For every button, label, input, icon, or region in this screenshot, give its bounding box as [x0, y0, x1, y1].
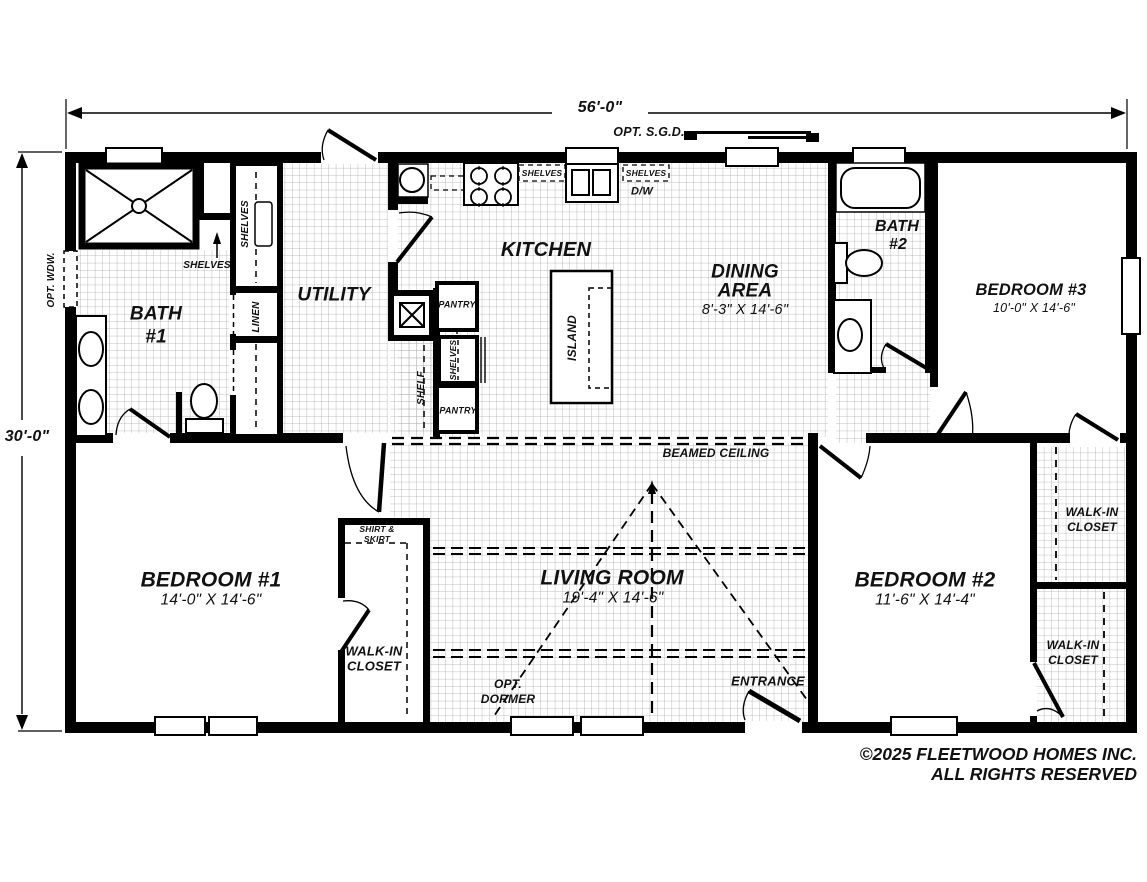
copyright-line2: ALL RIGHTS RESERVED: [860, 765, 1137, 785]
label-shirt-skirt-line2: SKIRT: [364, 535, 390, 544]
vanity-bath1: [76, 316, 106, 436]
label-closet-bottom-right-line1: WALK-IN: [1047, 639, 1100, 651]
label-opt-wdw: OPT. WDW.: [47, 252, 57, 307]
room-label-bath1-line2: #1: [145, 328, 167, 347]
floor-plan: 56'-0" 30'-0" OPT. S.G.D. OPT. WDW. BATH…: [0, 0, 1147, 882]
room-label-dining-line1: DINING: [711, 263, 779, 282]
label-shelves-pantry: SHELVES: [449, 340, 458, 381]
label-shelf: SHELF: [417, 371, 427, 405]
room-size-dining: 8'-3" X 14'-6": [702, 303, 788, 318]
room-label-bedroom2: BEDROOM #2: [855, 570, 996, 591]
room-label-bath2-line2: #2: [889, 237, 907, 253]
room-label-bath2-line1: BATH: [875, 219, 919, 235]
label-entrance: ENTRANCE: [731, 675, 805, 688]
label-closet-bedroom1-line1: WALK-IN: [346, 645, 403, 658]
label-closet-bedroom1-line2: CLOSET: [347, 660, 401, 673]
label-shelves-kitchen-right: SHELVES: [626, 169, 667, 178]
copyright-line1: ©2025 FLEETWOOD HOMES INC.: [860, 745, 1137, 765]
label-beamed-ceiling: BEAMED CEILING: [663, 447, 770, 459]
room-label-bedroom3: BEDROOM #3: [975, 282, 1086, 299]
closet-bedroom1-walls: [338, 518, 430, 722]
label-shelves-closet: SHELVES: [241, 200, 251, 248]
label-island: ISLAND: [566, 315, 578, 361]
label-opt-dormer-line1: OPT.: [494, 678, 522, 690]
label-shelves-kitchen-left: SHELVES: [522, 169, 563, 178]
stove-icon: [464, 163, 518, 207]
room-label-living: LIVING ROOM: [540, 568, 683, 589]
bathtub: [836, 163, 925, 212]
label-closet-top-right-line2: CLOSET: [1067, 521, 1117, 533]
kitchen-island: [551, 271, 612, 403]
optional-window: [64, 251, 77, 307]
room-label-utility: UTILITY: [297, 286, 370, 305]
room-size-living: 19'-4" X 14'-6": [563, 590, 664, 606]
label-opt-sgd: OPT. S.G.D.: [613, 126, 684, 139]
label-pantry-bottom: PANTRY: [439, 407, 476, 416]
label-linen: LINEN: [252, 302, 262, 333]
sliding-glass-door-symbol: [684, 131, 819, 142]
label-shelves-bath1: SHELVES: [183, 261, 231, 271]
label-opt-dormer-line2: DORMER: [481, 693, 536, 705]
utility-sink: [398, 164, 428, 197]
room-label-dining-line2: AREA: [718, 282, 773, 301]
room-label-kitchen: KITCHEN: [501, 240, 591, 260]
label-closet-top-right-line1: WALK-IN: [1066, 506, 1119, 518]
room-size-bedroom2: 11'-6" X 14'-4": [875, 592, 975, 608]
copyright-notice: ©2025 FLEETWOOD HOMES INC. ALL RIGHTS RE…: [860, 745, 1137, 784]
linen-closet: [229, 163, 280, 437]
label-dishwasher: D/W: [631, 187, 653, 198]
label-pantry-top: PANTRY: [438, 301, 475, 310]
dishwasher-icon: [566, 164, 618, 202]
water-heater: [391, 293, 432, 338]
label-shirt-skirt-line1: SHIRT &: [359, 525, 394, 534]
shower: [82, 166, 196, 246]
dimension-width: 56'-0": [573, 100, 628, 116]
dimension-depth: 30'-0": [0, 429, 54, 445]
room-label-bedroom1: BEDROOM #1: [141, 570, 282, 591]
vanity-bath2: [834, 300, 871, 373]
room-label-bath1-line1: BATH: [130, 305, 182, 324]
label-closet-bottom-right-line2: CLOSET: [1048, 654, 1098, 666]
room-size-bedroom3: 10'-0" X 14'-6": [993, 302, 1075, 315]
room-size-bedroom1: 14'-0" X 14'-6": [161, 592, 262, 608]
